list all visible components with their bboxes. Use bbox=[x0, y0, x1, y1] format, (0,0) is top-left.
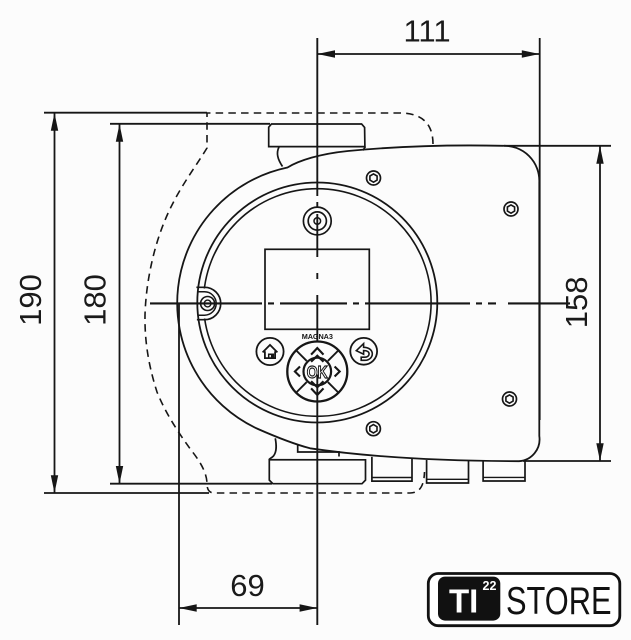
svg-text:STORE: STORE bbox=[506, 580, 612, 623]
svg-text:69: 69 bbox=[230, 568, 264, 603]
svg-text:180: 180 bbox=[78, 274, 113, 326]
svg-text:190: 190 bbox=[13, 274, 48, 326]
svg-text:TI: TI bbox=[449, 583, 478, 620]
svg-text:111: 111 bbox=[403, 14, 450, 49]
svg-text:158: 158 bbox=[559, 277, 594, 329]
svg-text:22: 22 bbox=[483, 579, 497, 593]
